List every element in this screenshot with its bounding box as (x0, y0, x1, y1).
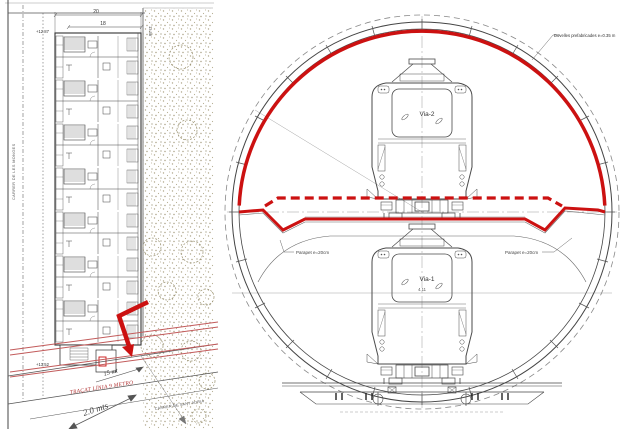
train-via-2 (367, 59, 477, 219)
gauge-dimension-label: 4.11 (418, 287, 427, 292)
dimension-top-inner: 18 (100, 21, 106, 27)
axis-lines (227, 16, 617, 408)
elevation-bottom-label: +13.52 (36, 362, 50, 367)
site-plan: 20 18 +12.87 13.58 +13.52 (0, 0, 220, 429)
dimension-right-label: 13.58 (148, 26, 153, 37)
garden-area (143, 8, 214, 429)
track-label-via2: Via-2 (419, 111, 434, 118)
tunnel-cross-section: Via-2 Via-1 4.11 Dovelles prefabricades … (220, 0, 627, 429)
dimension-top-outer: 20 (93, 9, 99, 15)
street-label-left: CARRER DE LES MONGES (12, 143, 16, 200)
track-label-via1: Via-1 (419, 276, 434, 283)
elevation-top-label: +12.87 (36, 29, 50, 34)
top-dimensions (54, 12, 143, 33)
slab-label-right: Parapet e=20cm (505, 250, 538, 255)
building-plan (55, 33, 141, 372)
lining-label: Dovelles prefabricades e=0.35 m (554, 33, 616, 38)
metro-route-label: TRAÇAT LÍNIA 9 METRO (69, 378, 134, 396)
drawing-sheet: 20 18 +12.87 13.58 +13.52 (0, 0, 627, 429)
slab-label-left: Parapet e=20cm (296, 250, 329, 255)
